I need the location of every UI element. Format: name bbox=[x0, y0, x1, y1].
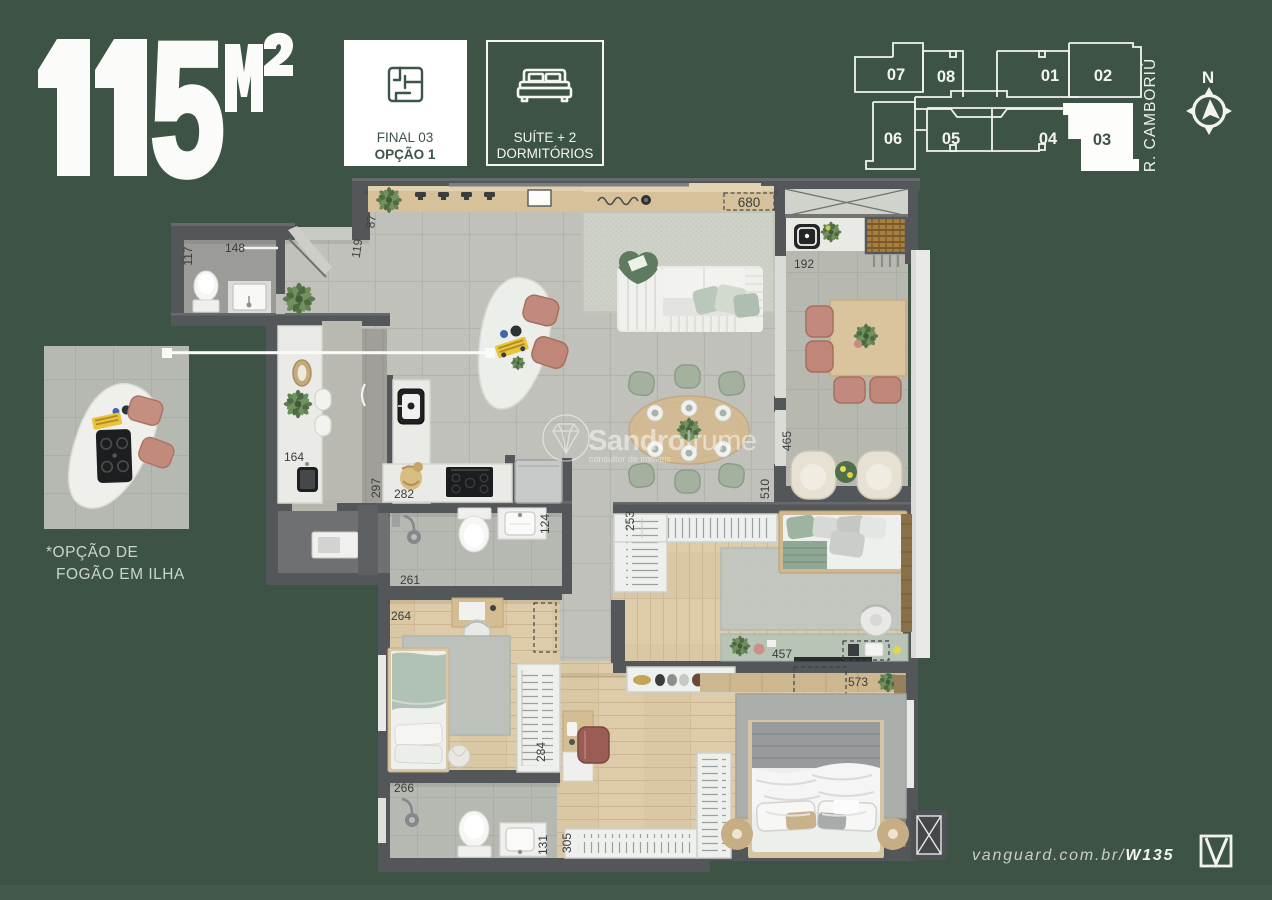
svg-text:consultor de imóveis: consultor de imóveis bbox=[589, 454, 672, 464]
svg-text:R. CAMBORIÚ: R. CAMBORIÚ bbox=[1142, 58, 1159, 172]
svg-text:*OPÇÃO DE: *OPÇÃO DE bbox=[46, 544, 138, 561]
svg-text:06: 06 bbox=[884, 130, 902, 148]
svg-text:SUÍTE + 2: SUÍTE + 2 bbox=[514, 130, 577, 145]
svg-text:510: 510 bbox=[758, 479, 772, 499]
svg-text:FINAL 03: FINAL 03 bbox=[377, 130, 434, 145]
svg-text:117: 117 bbox=[181, 246, 195, 265]
svg-text:457: 457 bbox=[772, 647, 792, 661]
svg-text:305: 305 bbox=[560, 833, 574, 853]
svg-text:87: 87 bbox=[363, 214, 379, 229]
svg-text:680: 680 bbox=[738, 195, 761, 210]
svg-text:266: 266 bbox=[394, 781, 414, 795]
svg-text:5: 5 bbox=[151, 5, 224, 215]
svg-text:192: 192 bbox=[794, 257, 814, 271]
svg-text:07: 07 bbox=[887, 66, 905, 84]
svg-text:02: 02 bbox=[1094, 67, 1112, 85]
svg-text:08: 08 bbox=[937, 68, 955, 86]
svg-text:01: 01 bbox=[1041, 67, 1059, 85]
svg-text:164: 164 bbox=[284, 450, 304, 464]
svg-text:253: 253 bbox=[623, 511, 637, 531]
svg-text:vanguard.com.br/W135: vanguard.com.br/W135 bbox=[972, 847, 1174, 864]
svg-text:261: 261 bbox=[400, 573, 420, 587]
svg-text:N: N bbox=[1202, 68, 1214, 87]
svg-text:573: 573 bbox=[848, 675, 868, 689]
svg-text:SandroIrume: SandroIrume bbox=[588, 425, 757, 457]
svg-text:119: 119 bbox=[349, 238, 366, 259]
svg-text:131: 131 bbox=[536, 835, 550, 855]
svg-text:03: 03 bbox=[1093, 131, 1111, 149]
svg-text:284: 284 bbox=[534, 742, 548, 762]
svg-text:465: 465 bbox=[780, 431, 794, 451]
svg-text:282: 282 bbox=[394, 487, 414, 501]
svg-text:124: 124 bbox=[538, 514, 552, 534]
svg-text:05: 05 bbox=[942, 130, 960, 148]
svg-text:148: 148 bbox=[225, 241, 245, 255]
svg-text:297: 297 bbox=[369, 478, 383, 498]
svg-text:04: 04 bbox=[1039, 130, 1058, 148]
svg-text:FOGÃO EM ILHA: FOGÃO EM ILHA bbox=[56, 566, 185, 583]
svg-text:DORMITÓRIOS: DORMITÓRIOS bbox=[497, 146, 594, 161]
svg-text:264: 264 bbox=[391, 609, 411, 623]
svg-text:OPÇÃO 1: OPÇÃO 1 bbox=[375, 147, 436, 162]
